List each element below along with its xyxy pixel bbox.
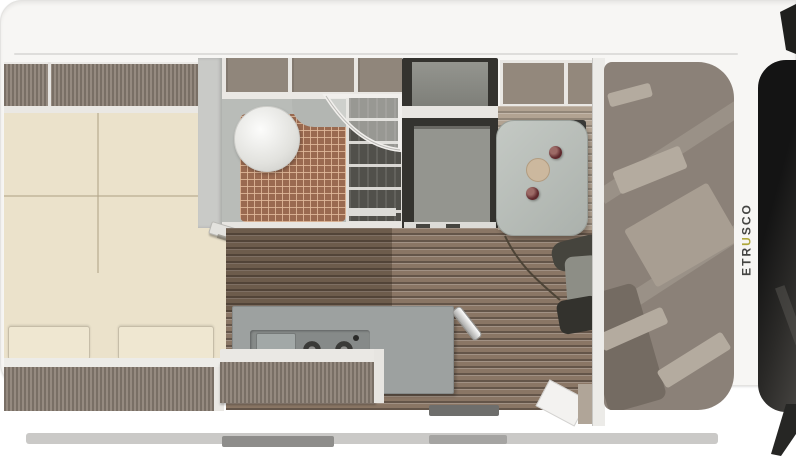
windshield-reflection xyxy=(775,285,796,345)
windshield xyxy=(758,60,796,412)
mattress-seam xyxy=(4,195,226,197)
kitchen-bench-front xyxy=(220,362,376,403)
fridge-shelf-band xyxy=(402,106,498,118)
camper-floorplan: ETRUSCO xyxy=(0,0,796,466)
plate xyxy=(526,158,550,182)
overhead-lockers-bathroom xyxy=(222,58,402,94)
bathroom-wall xyxy=(198,58,222,228)
bed-pillow-right xyxy=(118,326,214,360)
shelf-unit-base xyxy=(348,208,396,216)
hob-knob xyxy=(353,335,359,341)
kitchen-bench-top xyxy=(220,349,382,362)
roof-seam-line xyxy=(14,53,738,55)
cup xyxy=(526,187,539,200)
fridge-top-panel xyxy=(412,62,488,106)
cab-seat xyxy=(624,182,734,287)
cab-roof-panel xyxy=(604,62,734,410)
toilet-seat xyxy=(234,106,300,172)
bed-ledge xyxy=(4,358,228,367)
cab-seat xyxy=(612,145,688,194)
underbody-step-left xyxy=(222,436,334,447)
bathroom-shelf-unit xyxy=(346,95,404,224)
locker-lip xyxy=(4,106,222,113)
overhead-lockers-bed xyxy=(4,62,220,110)
cup xyxy=(549,146,562,159)
cab-headrest xyxy=(607,83,653,108)
wood-floor-shadow xyxy=(226,228,392,312)
bed-pillow-left xyxy=(8,326,90,360)
cab-seat xyxy=(656,331,731,388)
brand-logo: ETRUSCO xyxy=(740,185,755,295)
rear-bed-mattress xyxy=(4,113,226,360)
entry-step xyxy=(429,405,499,416)
brand-text-suffix: SCO xyxy=(740,203,754,235)
fridge-inner-panel xyxy=(414,126,490,229)
brand-text-accent: U xyxy=(740,235,754,246)
shelf-divider xyxy=(564,60,568,106)
kitchen-bench-cap xyxy=(374,349,384,403)
brand-text-prefix: ETR xyxy=(740,246,754,276)
vehicle-skirt xyxy=(26,433,718,444)
underbody-step-right xyxy=(429,435,507,444)
bed-sideboard xyxy=(4,367,216,411)
locker-divider xyxy=(48,62,51,108)
mattress-seam xyxy=(97,113,99,273)
